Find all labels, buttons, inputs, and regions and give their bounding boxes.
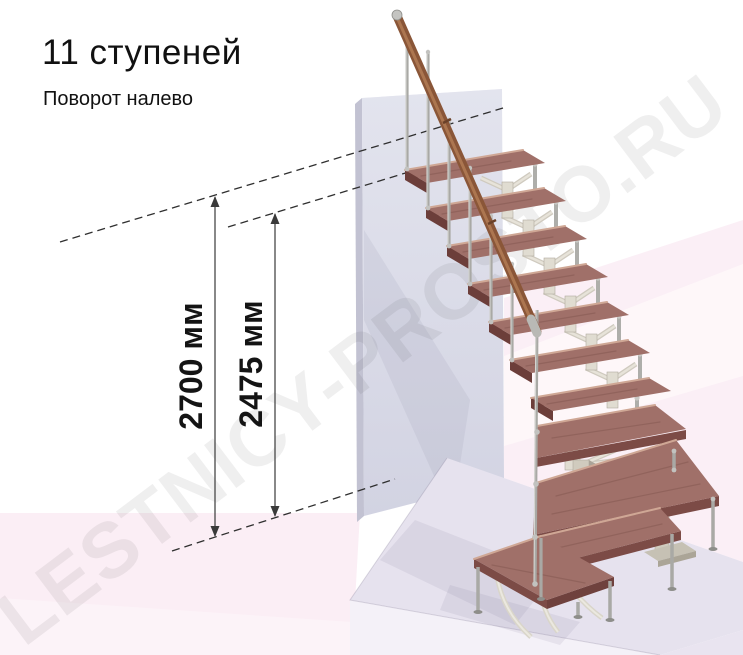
- page-subtitle: Поворот налево: [43, 88, 193, 111]
- staircase-diagram: LESTNICY-PROSTO.RU: [0, 0, 743, 655]
- handrail-cap: [392, 10, 402, 20]
- handrail-ferrule: [531, 319, 537, 333]
- dimension-label-2475: 2475 мм: [233, 300, 269, 427]
- dimension-label-2700: 2700 мм: [173, 302, 209, 429]
- page-title: 11 ступеней: [42, 34, 242, 73]
